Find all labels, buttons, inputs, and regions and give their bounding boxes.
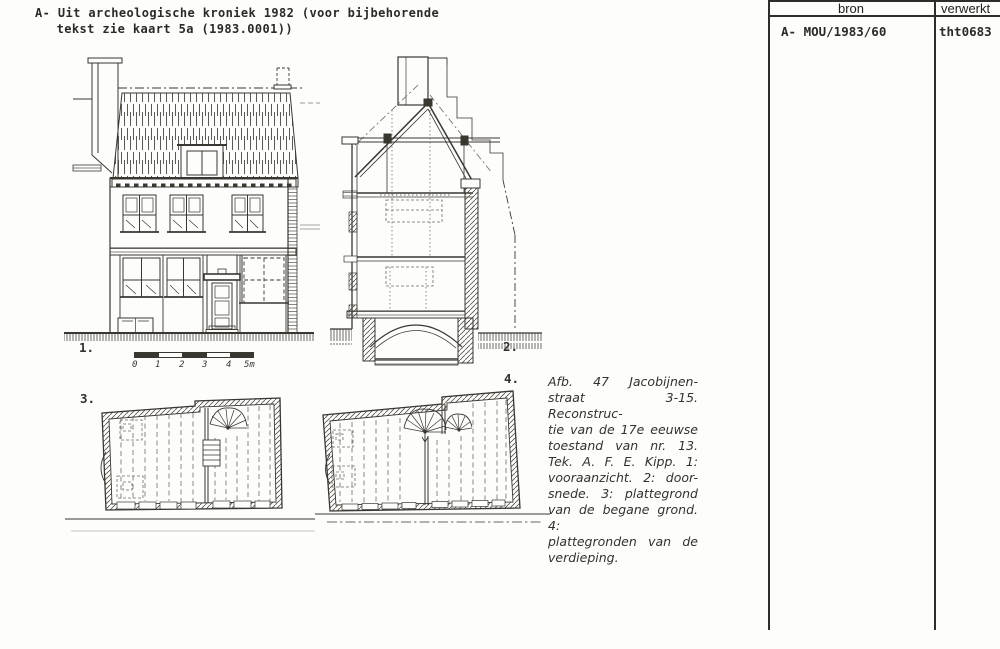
header-note-line2: tekst zie kaart 5a (1983.0001)) [57,21,439,37]
upper-floor-plan [315,378,550,533]
header-note-line1: A- Uit archeologische kroniek 1982 (voor… [35,5,439,21]
scale-tick-4: 4 [226,360,231,370]
upper-window-3 [229,195,266,232]
scale-bar: 0 1 2 3 4 5m [134,352,252,374]
basement-window [118,318,153,333]
register-divider-left [768,0,770,630]
scale-tick-0: 0 [132,360,137,370]
register-header-verwerkt: verwerkt [941,1,990,16]
caption-line: Afb. 47 Jacobijnen- [548,374,698,390]
neighbour-sill-right [300,225,320,229]
scale-tick-3: 3 [202,360,207,370]
caption-line: snede. 3: plattegrond [548,486,698,502]
caption-line: straat 3-15. Reconstruc- [548,390,698,422]
rear-wall [461,179,480,329]
figure-caption: Afb. 47 Jacobijnen- straat 3-15. Reconst… [548,374,698,566]
header-note: A- Uit archeologische kroniek 1982 (voor… [35,5,439,37]
cellar-vault [363,318,473,365]
register-value-bron: A- MOU/1983/60 [781,24,886,39]
chimney-right [274,68,291,89]
caption-line: van de begane grond. 4: [548,502,698,534]
elevation-drawing [60,55,322,350]
caption-line: Tek. A. F. E. Kipp. 1: [548,454,698,470]
register-divider-right [934,0,936,630]
upper-window-2 [167,195,206,232]
caption-line: tie van de 17e eeuwse [548,422,698,438]
front-wall [342,137,358,329]
side-wall-strip [288,187,297,333]
section-chimney [398,57,447,105]
caption-line: toestand van nr. 13. [548,438,698,454]
figure-label-4: 4. [504,371,519,386]
stepped-gable-outline [447,65,503,180]
section-drawing [330,55,545,370]
caption-line: vooraanzicht. 2: door- [548,470,698,486]
ground-window-2 [164,258,203,297]
eaves-cornice [110,178,298,187]
plan3-windows [117,501,270,509]
mid-cornice [110,248,296,255]
archive-card: A- Uit archeologische kroniek 1982 (voor… [0,0,1000,649]
hearth-dashed [386,110,442,311]
ground-line [64,333,314,341]
dormer-window [177,145,227,178]
register-header-bron: bron [768,1,934,16]
plan3-inner-wall [109,404,276,504]
scale-tick-2: 2 [179,360,184,370]
attic-floor [357,193,473,197]
register-value-verwerkt: tht0683 [939,24,992,39]
upper-window-1 [120,195,159,232]
ground-floor-beam [347,311,465,318]
figure-label-3: 3. [80,391,95,406]
ground-floor-plan [65,390,315,540]
caption-line: verdieping. [548,550,698,566]
neighbour-ledge-left [73,165,101,171]
caption-line: plattegronden van de [548,534,698,550]
scale-tick-1: 1 [155,360,160,370]
figure-label-2: 2. [503,339,518,354]
ground-window-1 [120,258,163,297]
scale-tick-5: 5m [244,360,255,370]
gable-dashdot [503,180,515,331]
figure-label-1: 1. [79,340,94,355]
scale-bar-segments [134,352,254,358]
roof-truss [352,85,500,193]
